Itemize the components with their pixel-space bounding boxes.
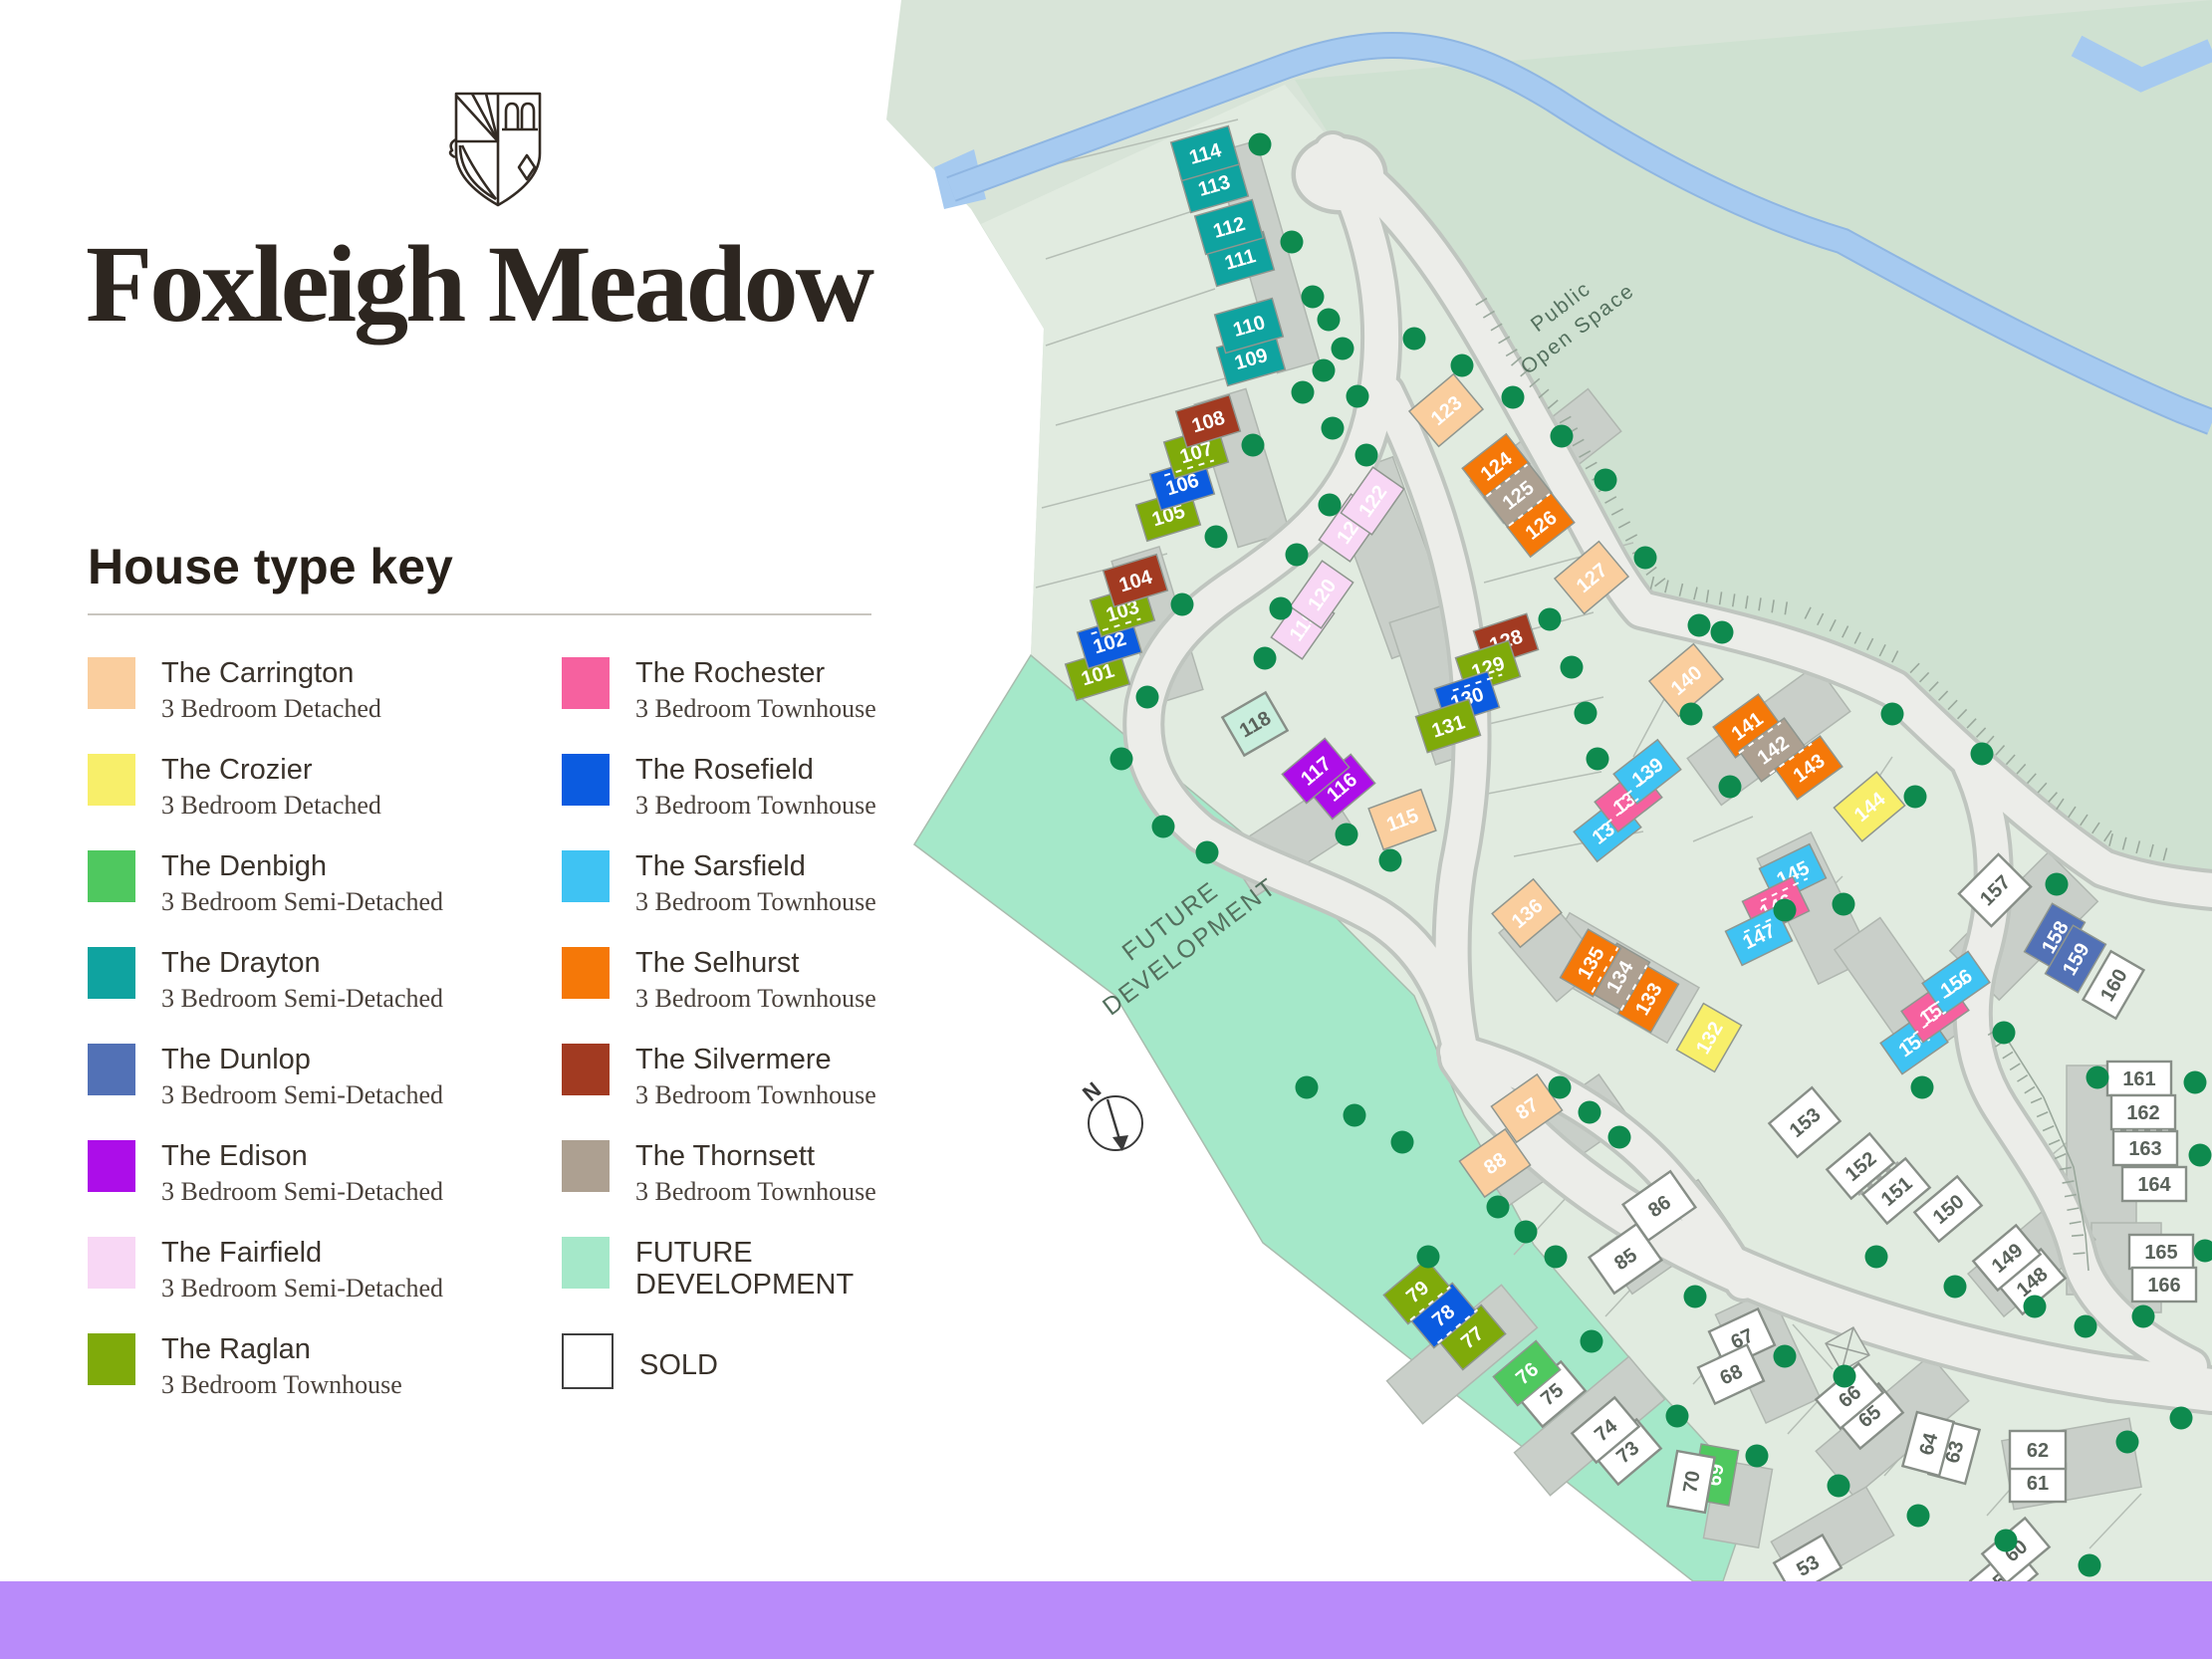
- drayton-swatch: [88, 947, 135, 999]
- legend-label: The Sarsfield: [635, 850, 876, 882]
- legend-sublabel: 3 Bedroom Townhouse: [635, 1080, 876, 1110]
- tree-icon: [1332, 338, 1354, 360]
- tree-icon: [1551, 425, 1574, 448]
- tree-icon: [1575, 702, 1598, 725]
- tree-icon: [1581, 1330, 1603, 1353]
- tree-icon: [1774, 899, 1797, 922]
- tree-icon: [2170, 1407, 2193, 1430]
- tree-icon: [1391, 1131, 1414, 1154]
- north-arrow: N: [1078, 1077, 1142, 1151]
- tree-icon: [1270, 597, 1293, 620]
- tree-icon: [1286, 544, 1309, 567]
- tree-icon: [1539, 608, 1562, 631]
- raglan-swatch: [88, 1333, 135, 1385]
- legend-label: The Raglan: [161, 1333, 402, 1365]
- legend-divider: [88, 613, 871, 615]
- tree-icon: [1242, 434, 1265, 457]
- tree-icon: [1911, 1076, 1934, 1099]
- legend-label: The Rochester: [635, 657, 876, 689]
- tree-icon: [1711, 621, 1734, 644]
- tree-icon: [1834, 1365, 1856, 1388]
- tree-icon: [1579, 1101, 1601, 1124]
- denbigh-swatch: [88, 850, 135, 902]
- plot-number: 162: [2126, 1102, 2159, 1124]
- plot-number: 70: [1679, 1469, 1705, 1495]
- tree-icon: [2116, 1431, 2139, 1454]
- legend-item-dunlop: The Dunlop3 Bedroom Semi-Detached: [88, 1044, 443, 1110]
- plot-number: 165: [2144, 1242, 2177, 1264]
- footer-bar: [0, 1581, 2212, 1659]
- plot-number: 62: [2027, 1440, 2049, 1462]
- plot-165[interactable]: 165: [2129, 1235, 2193, 1269]
- tree-icon: [1545, 1246, 1568, 1269]
- tree-icon: [1322, 417, 1345, 440]
- tree-icon: [2087, 1066, 2109, 1089]
- crozier-swatch: [88, 754, 135, 806]
- tree-icon: [1774, 1345, 1797, 1368]
- tree-icon: [2046, 873, 2069, 896]
- thornsett-swatch: [562, 1140, 610, 1192]
- tree-icon: [1249, 133, 1272, 156]
- legend-sublabel: 3 Bedroom Townhouse: [161, 1370, 402, 1400]
- tree-icon: [1684, 1286, 1707, 1308]
- legend-sublabel: 3 Bedroom Detached: [161, 694, 381, 724]
- plot-161[interactable]: 161: [2107, 1062, 2171, 1095]
- tree-icon: [1403, 328, 1426, 351]
- legend-item-fairfield: The Fairfield3 Bedroom Semi-Detached: [88, 1237, 443, 1303]
- tree-icon: [1688, 614, 1711, 637]
- legend-sublabel: 3 Bedroom Townhouse: [635, 1177, 876, 1207]
- tree-icon: [1355, 444, 1378, 467]
- legend-item-sold: SOLD: [562, 1333, 718, 1389]
- tree-icon: [1680, 703, 1703, 726]
- legend-sublabel: 3 Bedroom Semi-Detached: [161, 887, 443, 917]
- legend-sublabel: 3 Bedroom Semi-Detached: [161, 984, 443, 1014]
- legend-label: The Thornsett: [635, 1140, 876, 1172]
- legend-sublabel: 3 Bedroom Townhouse: [635, 694, 876, 724]
- legend-item-drayton: The Drayton3 Bedroom Semi-Detached: [88, 947, 443, 1014]
- tree-icon: [1833, 893, 1855, 916]
- tree-icon: [1502, 386, 1525, 409]
- legend-item-rosefield: The Rosefield3 Bedroom Townhouse: [562, 754, 876, 821]
- legend-title: House type key: [88, 538, 914, 595]
- future-swatch: [562, 1237, 610, 1289]
- tree-icon: [1971, 743, 1994, 766]
- tree-icon: [2132, 1305, 2155, 1328]
- sold-swatch: [562, 1333, 614, 1389]
- dunlop-swatch: [88, 1044, 135, 1095]
- legend-item-denbigh: The Denbigh3 Bedroom Semi-Detached: [88, 850, 443, 917]
- tree-icon: [1515, 1221, 1538, 1244]
- tree-icon: [1995, 1530, 2018, 1552]
- tree-icon: [1881, 703, 1904, 726]
- tree-icon: [1944, 1276, 1967, 1299]
- tree-icon: [1296, 1076, 1319, 1099]
- tree-icon: [1196, 841, 1219, 864]
- tree-icon: [1907, 1505, 1930, 1528]
- sarsfield-swatch: [562, 850, 610, 902]
- legend-label: The Edison: [161, 1140, 443, 1172]
- legend-item-rochester: The Rochester3 Bedroom Townhouse: [562, 657, 876, 724]
- tree-icon: [1110, 748, 1133, 771]
- tree-icon: [1828, 1475, 1850, 1498]
- legend-sublabel: 3 Bedroom Semi-Detached: [161, 1274, 443, 1303]
- site-plan-page: 5359606162636465666768697073747576777879…: [0, 0, 2212, 1659]
- tree-icon: [1417, 1246, 1440, 1269]
- tree-icon: [1549, 1076, 1572, 1099]
- plot-163[interactable]: 163: [2113, 1131, 2177, 1165]
- legend-sublabel: 3 Bedroom Townhouse: [635, 887, 876, 917]
- tree-icon: [1904, 786, 1927, 809]
- legend-item-carrington: The Carrington3 Bedroom Detached: [88, 657, 381, 724]
- edison-swatch: [88, 1140, 135, 1192]
- legend-item-sarsfield: The Sarsfield3 Bedroom Townhouse: [562, 850, 876, 917]
- legend-label: The Carrington: [161, 657, 381, 689]
- tree-icon: [1318, 309, 1341, 332]
- legend-label: FUTURE DEVELOPMENT: [635, 1237, 914, 1302]
- tree-icon: [1865, 1246, 1888, 1269]
- tree-icon: [1171, 593, 1194, 616]
- legend-item-raglan: The Raglan3 Bedroom Townhouse: [88, 1333, 402, 1400]
- plot-162[interactable]: 162: [2111, 1095, 2175, 1129]
- legend-label: The Dunlop: [161, 1044, 443, 1075]
- legend-label: The Silvermere: [635, 1044, 876, 1075]
- tree-icon: [1152, 816, 1175, 838]
- plot-number: 164: [2137, 1174, 2171, 1196]
- tree-icon: [1487, 1196, 1510, 1219]
- tree-icon: [1719, 776, 1742, 799]
- legend-label: The Drayton: [161, 947, 443, 979]
- tree-icon: [1313, 359, 1336, 382]
- plot-number: 166: [2147, 1275, 2180, 1297]
- tree-icon: [1993, 1022, 2016, 1045]
- legend-item-edison: The Edison3 Bedroom Semi-Detached: [88, 1140, 443, 1207]
- tree-icon: [1587, 748, 1609, 771]
- legend-sublabel: 3 Bedroom Semi-Detached: [161, 1177, 443, 1207]
- legend-label: SOLD: [639, 1349, 718, 1381]
- tree-icon: [1666, 1405, 1689, 1428]
- legend-sublabel: 3 Bedroom Townhouse: [635, 791, 876, 821]
- legend-label: The Selhurst: [635, 947, 876, 979]
- tree-icon: [1379, 849, 1402, 872]
- legend-sublabel: 3 Bedroom Townhouse: [635, 984, 876, 1014]
- tree-icon: [2189, 1144, 2212, 1167]
- site-title: Foxleigh Meadow: [86, 221, 871, 348]
- rochester-swatch: [562, 657, 610, 709]
- house-type-key: House type key The Carrington3 Bedroom D…: [88, 538, 914, 595]
- tree-icon: [1595, 469, 1617, 492]
- legend-label: The Denbigh: [161, 850, 443, 882]
- tree-icon: [1336, 824, 1358, 846]
- tree-icon: [1281, 231, 1304, 254]
- legend-label: The Fairfield: [161, 1237, 443, 1269]
- legend-label: The Crozier: [161, 754, 381, 786]
- tree-icon: [1634, 547, 1657, 570]
- tree-icon: [1347, 385, 1369, 408]
- tree-icon: [2075, 1315, 2097, 1338]
- tree-icon: [2079, 1554, 2101, 1577]
- legend-item-thornsett: The Thornsett3 Bedroom Townhouse: [562, 1140, 876, 1207]
- tree-icon: [1319, 494, 1342, 517]
- selhurst-swatch: [562, 947, 610, 999]
- tree-icon: [1451, 355, 1474, 377]
- plot-number: 161: [2122, 1068, 2155, 1090]
- tree-icon: [1292, 381, 1315, 404]
- tree-icon: [1205, 526, 1228, 549]
- tree-icon: [1302, 286, 1325, 309]
- carrington-swatch: [88, 657, 135, 709]
- tree-icon: [2184, 1071, 2207, 1094]
- tree-icon: [1136, 686, 1159, 709]
- plot-70[interactable]: 70: [1667, 1451, 1714, 1513]
- legend-item-future: FUTURE DEVELOPMENT: [562, 1237, 914, 1302]
- plot-166[interactable]: 166: [2132, 1268, 2196, 1302]
- tree-icon: [1561, 656, 1584, 679]
- legend-label: The Rosefield: [635, 754, 876, 786]
- tree-icon: [1608, 1126, 1631, 1149]
- legend-item-silvermere: The Silvermere3 Bedroom Townhouse: [562, 1044, 876, 1110]
- rosefield-swatch: [562, 754, 610, 806]
- legend-sublabel: 3 Bedroom Detached: [161, 791, 381, 821]
- plot-number: 61: [2027, 1473, 2049, 1495]
- silvermere-swatch: [562, 1044, 610, 1095]
- plot-number: 163: [2128, 1138, 2161, 1160]
- tree-icon: [1254, 647, 1277, 670]
- legend-item-selhurst: The Selhurst3 Bedroom Townhouse: [562, 947, 876, 1014]
- tree-icon: [2024, 1296, 2047, 1318]
- legend-item-crozier: The Crozier3 Bedroom Detached: [88, 754, 381, 821]
- tree-icon: [1746, 1445, 1769, 1468]
- tree-icon: [1344, 1104, 1366, 1127]
- brand-crest-icon: [446, 88, 550, 213]
- legend-sublabel: 3 Bedroom Semi-Detached: [161, 1080, 443, 1110]
- plot-164[interactable]: 164: [2122, 1167, 2186, 1201]
- plot-62[interactable]: 62: [2010, 1431, 2066, 1469]
- fairfield-swatch: [88, 1237, 135, 1289]
